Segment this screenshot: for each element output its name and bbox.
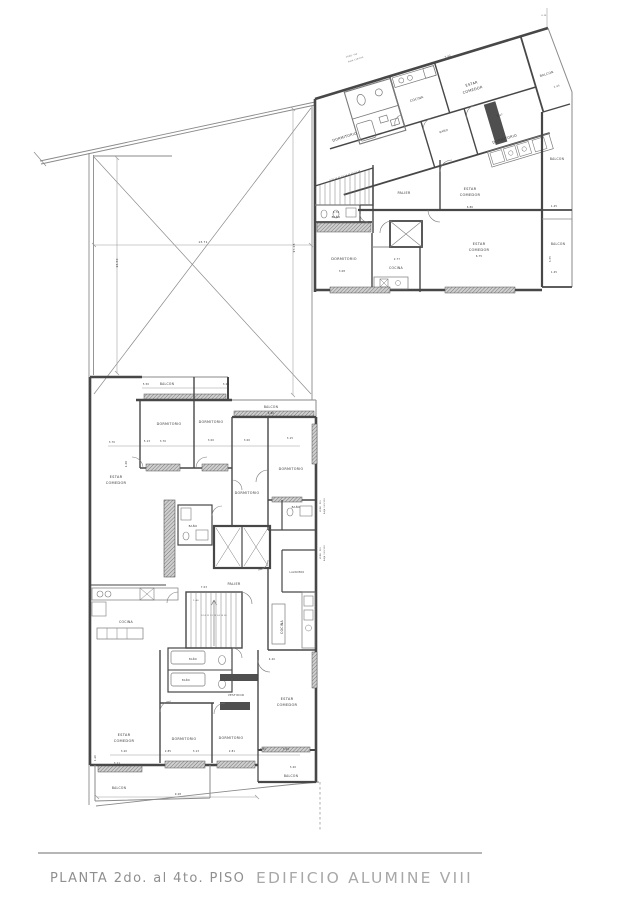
dimension-label: 3.00 [208,439,215,442]
dimension-label: 5.13 [144,440,151,443]
room-label: ESTAR [281,697,294,701]
room-label: ESTAR [118,733,131,737]
dimension-label: 3.55 [549,256,552,263]
room-label: BAÑO [189,523,198,528]
dimension-label: 13.60 [115,258,119,267]
plan-title-building: EDIFICIO ALUMINE VIII [256,869,473,887]
dimension-label: 0.15 [541,15,546,17]
title-block: PLANTA 2do. al 4to. PISO EDIFICIO ALUMIN… [38,853,482,887]
plan-title-floor: PLANTA 2do. al 4to. PISO [50,871,245,886]
dimension-label: 9 10 11 12 13 14 15 16 [201,615,226,617]
dimension-label: 4.20 [125,461,128,468]
room-label: COCINA [280,619,284,634]
lower-block [90,377,317,801]
elevators [214,526,270,568]
room-label: BALCON [264,405,279,409]
floor-plan-drawing: ESTARCOMEDORCOCINABALCONDORMITORIOBAÑODO… [0,0,636,900]
dimension-label: 0.50 [260,748,267,751]
kitchen-right [272,592,315,648]
dimension-label: 3.70 [160,440,167,443]
site-boundary [34,8,547,832]
dimension-label: 3.20 [290,766,297,769]
room-label: COCINA [119,620,134,624]
room-label: BALCON [112,786,127,790]
dimension-label: 1.45 [551,271,558,274]
central-baths [168,648,232,692]
room-label: LAVADERO [290,571,305,574]
dimension-label: 2.85 [165,750,172,753]
room-label: BAÑO [182,679,190,682]
room-label: COCINA [389,266,404,270]
room-label: DORMITORIO [219,736,244,740]
dimension-label: 3.11 [114,762,121,765]
room-label: DORMITORIO [235,491,260,495]
patio-cross [94,108,311,394]
dimension-label: 1.20 [94,755,97,761]
dimension-label: 2.81 [229,750,236,753]
upper-block [315,28,572,293]
room-label: COMEDOR [114,739,135,743]
vestidor-wall [220,674,258,681]
room-label: VESTIDOR [228,693,244,697]
upper-wing [315,37,554,210]
dimension-lines [92,107,313,799]
dimension-label: 2.77 [394,258,401,261]
note-label: BAJA 120/200 [323,545,326,561]
room-label: BAÑO [189,658,197,661]
note-label: BAJA 120/200 [323,498,326,514]
room-label: DORMITORIO [172,737,197,741]
dimension-label: 3.00 [244,439,251,442]
room-label: COMEDOR [469,248,490,252]
note-label: VERD. PLV [320,500,322,512]
dimension-label: 1.45 [553,84,560,89]
dimension-label: 4.80 [268,412,275,415]
dimension-label: 7.03 [201,586,208,589]
dimension-label: 3.21 [223,383,230,386]
dimension-label: 3.20 [283,748,290,751]
room-label: BAÑO [439,127,449,134]
room-label: BALCON [551,242,566,246]
kitchen-left [90,585,178,639]
room-label: COCINA [409,95,424,103]
room-label: PALIER [227,582,240,586]
dimension-label: 17.26 [292,243,296,252]
room-label: ESTAR [464,187,477,191]
dimension-label: 3.13 [193,750,200,753]
room-label: BALCON [160,382,175,386]
note-label: VERD. PLV [320,547,322,559]
room-label: DORMITORIO [331,257,357,261]
room-label: BALCON [550,157,565,161]
room-label: BALCON [539,70,554,78]
room-label: DORMITORIO [199,420,224,424]
dimension-label: 4.20 [269,658,276,661]
upper-stairs [315,168,373,205]
dimension-label: 13.71 [198,240,207,244]
dimension-label: 3.15 [287,437,294,440]
room-label: DORMITORIO [157,422,182,426]
room-label: DORMITORIO [279,467,304,471]
dimension-label: 3.20 [121,750,128,753]
dimension-label: 1.40 [193,600,199,602]
room-label: COMEDOR [460,193,481,197]
dimension-label: 1.45 [551,205,558,208]
upper-elevator [390,221,422,247]
room-label: PALIER [397,191,410,195]
shaft-wall [164,500,175,577]
room-label: BALCON [284,774,299,778]
dimension-label: 3.70 [333,211,340,214]
room-label: BAÑO [332,214,341,219]
room-label: COMEDOR [106,481,127,485]
room-label: BAÑO [292,504,301,509]
dimension-label: 6.86 [467,206,474,209]
dimension-label: 5.50 [143,383,150,386]
room-label: COMEDOR [277,703,298,707]
room-label: ESTAR [473,242,486,246]
window-wall [317,223,371,232]
room-label: ESTAR [110,475,123,479]
dimension-label: 9.28 [175,793,182,796]
dimension-label: 3.70 [109,441,116,444]
dimension-label: 6.75 [476,255,483,258]
floor-plan-page: ESTARCOMEDORCOCINABALCONDORMITORIOBAÑODO… [0,0,636,900]
dimension-label: 3.08 [339,270,346,273]
